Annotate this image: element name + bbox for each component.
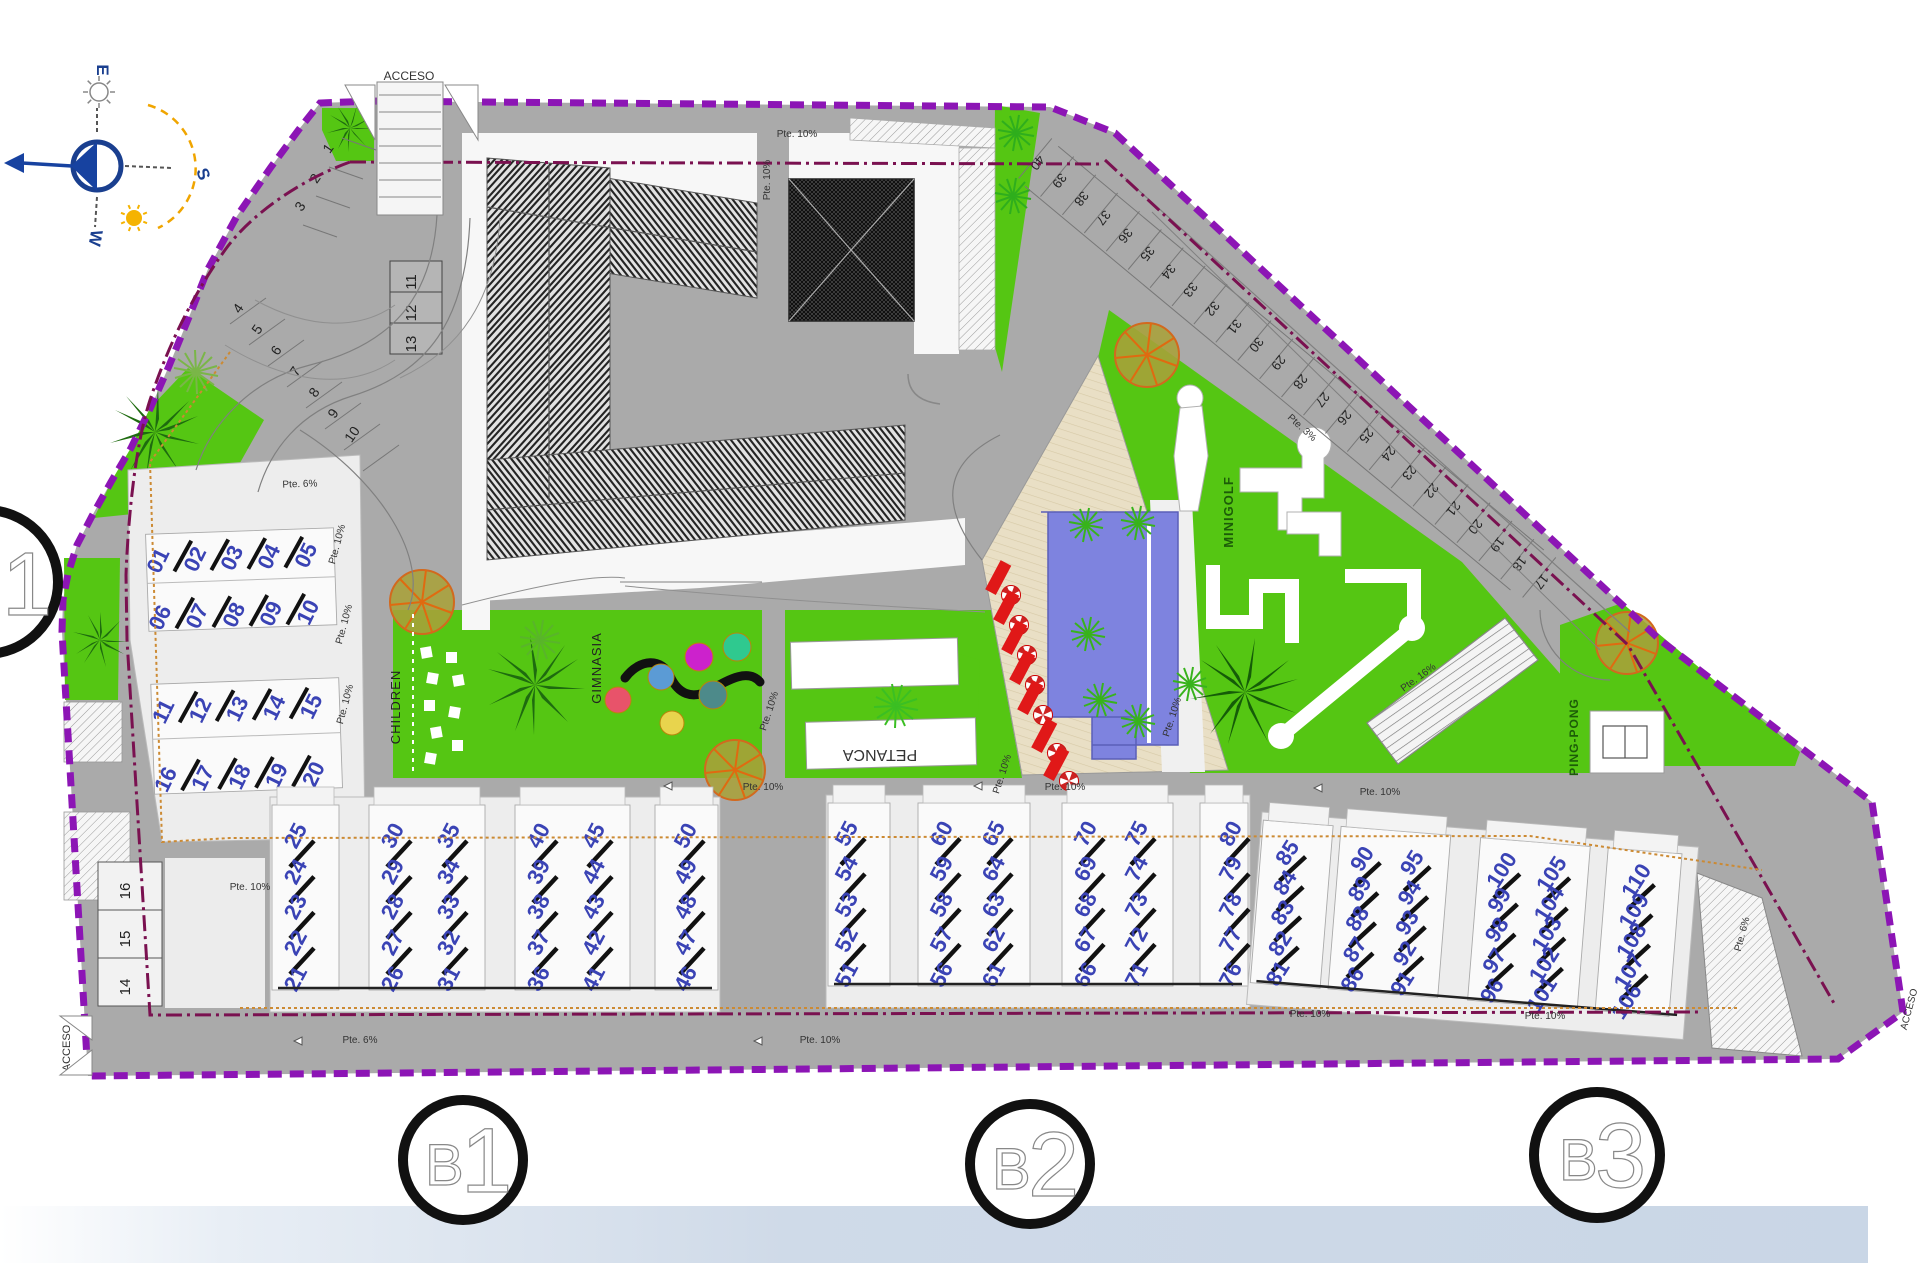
svg-text:ACCESO: ACCESO — [384, 69, 435, 83]
svg-text:PING-PONG: PING-PONG — [1567, 698, 1581, 776]
svg-text:2: 2 — [1028, 1114, 1079, 1216]
svg-text:Pte. 6%: Pte. 6% — [342, 1035, 377, 1046]
svg-text:16: 16 — [117, 883, 134, 900]
svg-text:Pte. 10%: Pte. 10% — [762, 160, 773, 201]
svg-text:11: 11 — [403, 274, 420, 290]
svg-text:1: 1 — [2, 535, 52, 635]
svg-text:ACCESO: ACCESO — [61, 1024, 73, 1071]
svg-text:Pte. 10%: Pte. 10% — [1525, 1011, 1566, 1022]
svg-text:13: 13 — [403, 336, 420, 353]
svg-text:Pte. 10%: Pte. 10% — [1290, 1009, 1331, 1020]
svg-text:Pte. 6%: Pte. 6% — [282, 478, 317, 490]
svg-text:GIMNASIA: GIMNASIA — [589, 632, 604, 704]
svg-text:Pte. 10%: Pte. 10% — [1045, 782, 1086, 793]
svg-text:12: 12 — [403, 305, 420, 322]
svg-text:B: B — [1559, 1128, 1598, 1193]
svg-text:PETANCA: PETANCA — [842, 746, 917, 763]
svg-text:Pte. 10%: Pte. 10% — [777, 129, 818, 140]
svg-text:Pte. 10%: Pte. 10% — [1360, 787, 1401, 798]
svg-text:15: 15 — [117, 931, 134, 948]
svg-text:Pte. 10%: Pte. 10% — [743, 782, 784, 793]
svg-text:Pte. 10%: Pte. 10% — [800, 1035, 841, 1046]
svg-text:1: 1 — [461, 1110, 512, 1212]
svg-text:E: E — [93, 64, 112, 75]
svg-text:Pte. 10%: Pte. 10% — [230, 882, 271, 893]
svg-text:MINIGOLF: MINIGOLF — [1221, 476, 1236, 548]
svg-text:14: 14 — [117, 979, 134, 996]
svg-text:CHILDREN: CHILDREN — [388, 670, 403, 744]
svg-text:B: B — [425, 1133, 464, 1198]
svg-text:3: 3 — [1595, 1105, 1646, 1207]
svg-text:B: B — [992, 1137, 1031, 1202]
